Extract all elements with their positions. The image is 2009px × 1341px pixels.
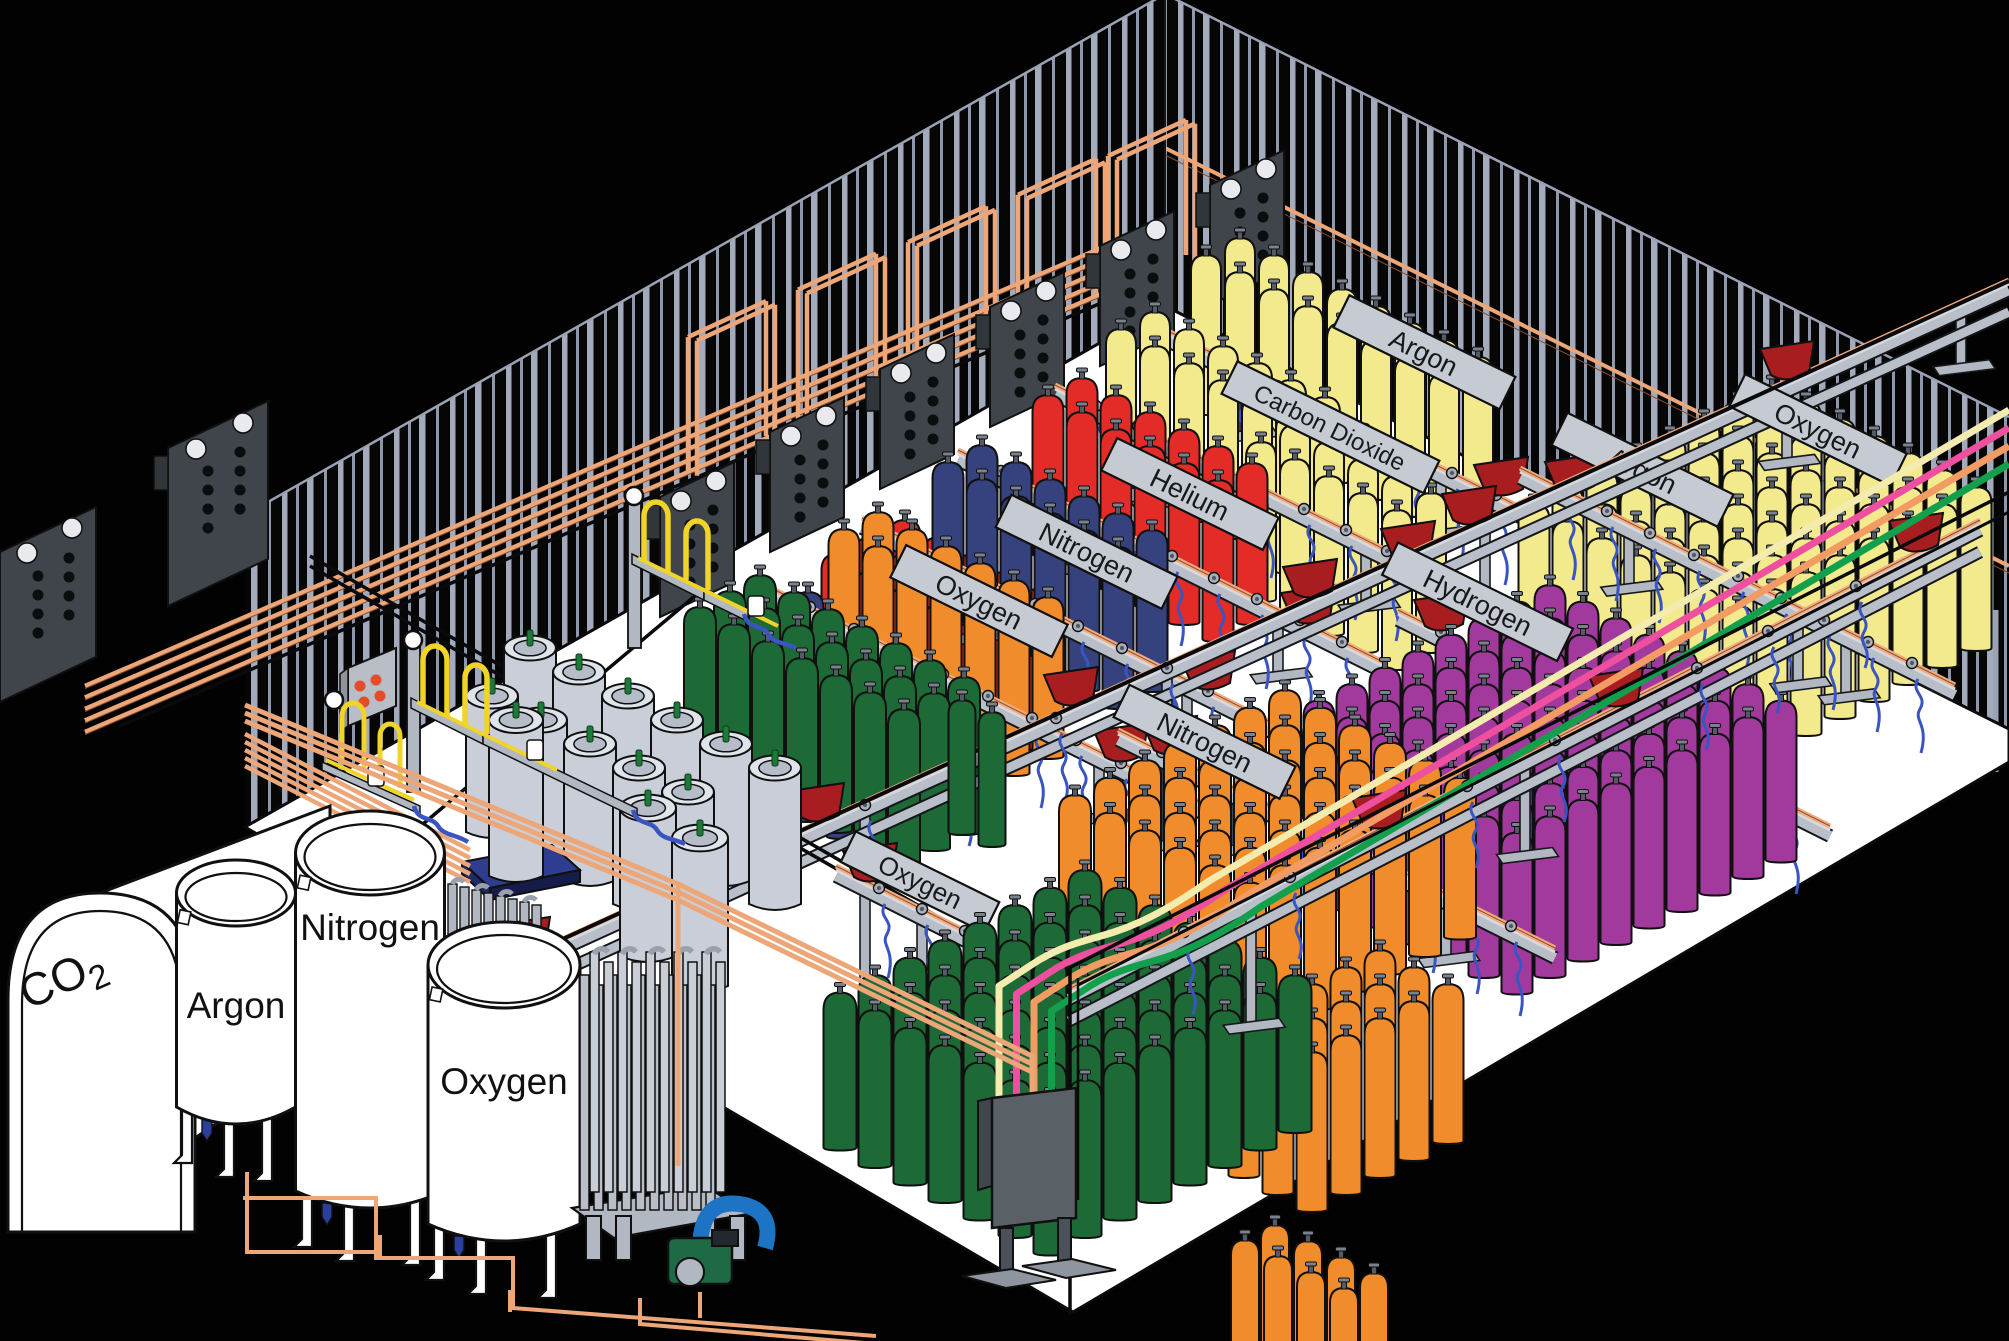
svg-text:Oxygen: Oxygen [440,1061,568,1102]
svg-text:Nitrogen: Nitrogen [300,907,440,948]
svg-text:Argon: Argon [187,985,286,1026]
